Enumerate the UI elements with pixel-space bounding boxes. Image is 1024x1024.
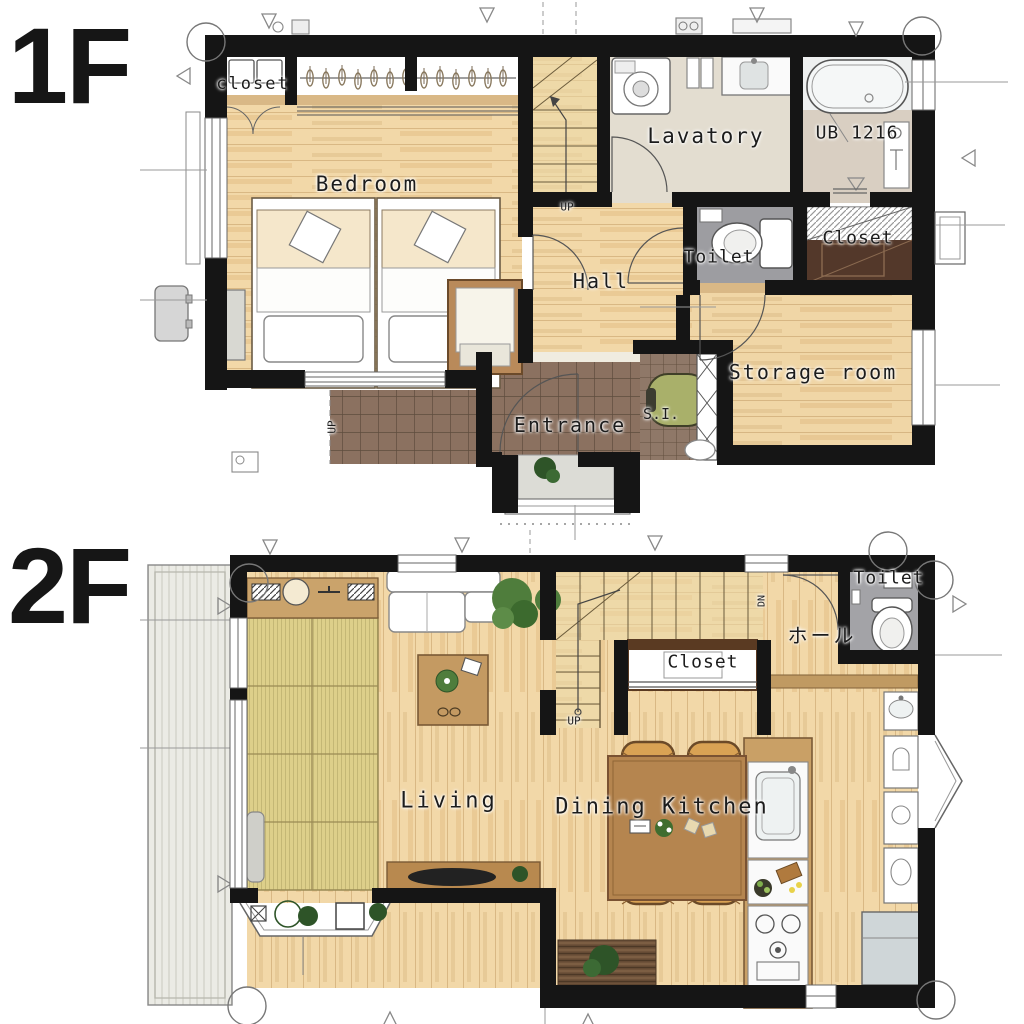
f1-label-lavatory: Lavatory	[647, 124, 764, 148]
f1-bathtub	[807, 60, 908, 113]
floor-plan-drawing	[0, 0, 1024, 1024]
f2-label-stairs-dn: DN	[757, 595, 768, 607]
f1-label-bath: UB 1216	[816, 123, 899, 144]
f2-label-hall: ホール	[788, 620, 857, 649]
f2-hall-counter	[770, 675, 918, 688]
f2-tv-cabinet-north	[247, 578, 378, 618]
f2-sofa	[387, 570, 500, 632]
f1-label-storage: Storage room	[729, 360, 898, 384]
f1-stairs	[533, 57, 597, 203]
f2-coffee-table	[418, 655, 488, 725]
f1-bed-1	[252, 198, 375, 388]
f1-label-hall: Hall	[573, 269, 629, 293]
f1-entrance-floor	[492, 362, 640, 458]
floor1-title: 1F	[8, 22, 130, 111]
f2-tv-board	[387, 862, 540, 892]
f2-label-living: Living	[400, 789, 497, 814]
f2-label-closet: Closet	[667, 652, 738, 673]
f1-label-closet-small: closet	[216, 74, 289, 94]
f2-kitchen-counter	[744, 738, 812, 1008]
f2-label-toilet: Toilet	[853, 568, 924, 589]
floor-plan-page: 1F 2F closet Bedroom Lavatory UB 1216 UP…	[0, 0, 1024, 1024]
f2-tatami-area	[247, 618, 378, 890]
f2-wood-deck	[558, 940, 656, 985]
f2-washbasin	[884, 692, 918, 730]
floor2-plan	[140, 530, 1002, 1024]
f1-label-closet: Closet	[822, 228, 893, 249]
f1-label-stairs-up: UP	[560, 201, 573, 214]
f2-label-dining-kitchen: Dining Kitchen	[555, 795, 768, 820]
f2-refrigerator	[862, 912, 920, 985]
f2-floor-cushion	[247, 812, 264, 882]
f1-vanity-sink	[722, 57, 793, 95]
f1-label-approach-up: UP	[326, 420, 339, 433]
f1-label-shoe-closet: S.I.	[643, 405, 679, 423]
f2-cupboards	[884, 736, 918, 903]
f1-dresser	[225, 290, 245, 360]
f1-label-entrance: Entrance	[514, 413, 626, 437]
f2-dining-table	[608, 742, 746, 904]
f1-approach-tiles	[330, 390, 478, 464]
f2-label-stairs-up: UP	[567, 715, 580, 728]
f2-balcony	[140, 565, 232, 1005]
f1-label-toilet: Toilet	[683, 247, 754, 268]
f1-label-bedroom: Bedroom	[316, 172, 419, 196]
floor2-title: 2F	[8, 542, 130, 631]
f1-washing-machine	[612, 58, 670, 114]
f1-ac-outdoor-unit	[155, 286, 188, 341]
